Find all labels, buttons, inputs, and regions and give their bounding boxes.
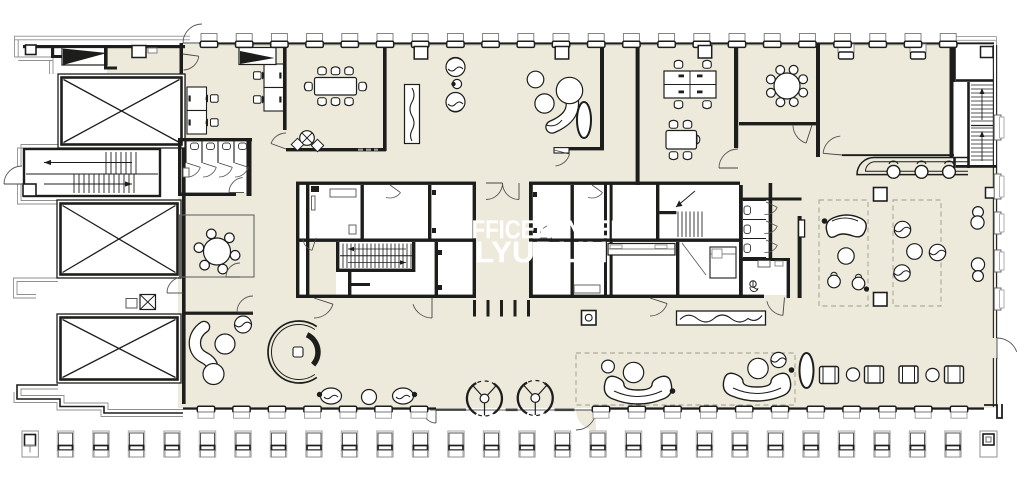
svg-text:LYUBLIN: LYUBLIN — [475, 236, 608, 269]
